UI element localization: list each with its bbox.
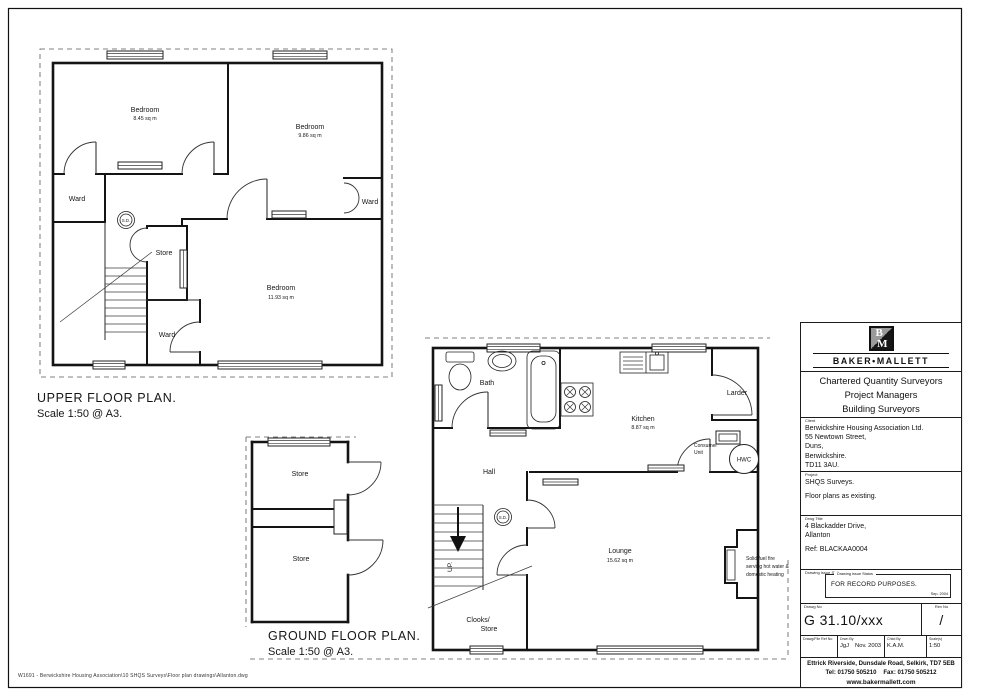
upper-external-walls [53,63,382,365]
checked-by-value: K.A.M. [887,643,924,649]
revision-label: Rev No [925,605,958,610]
client-line: Duns, [805,442,957,451]
drawing-info-row: Drawg/File Ref No Drwn By JgJNov. 2003 C… [801,636,961,659]
tagline-1: Chartered Quantity Surveyors [805,375,957,389]
tagline-2: Project Managers [805,389,957,403]
room-label-bath: Bath [480,380,495,387]
ground-stairs: UP. [428,505,532,608]
room-label-bedroom1: Bedroom [131,107,160,114]
project-line: Floor plans as existing. [805,492,957,501]
tagline-3: Building Surveyors [805,403,957,417]
scale-cell: Scale(s) 1:50 [926,636,961,658]
project-line: SHQS Surveys. [805,478,957,487]
ground-plan-scale: Scale 1:50 @ A3. [268,646,353,658]
upper-internal-walls [53,63,382,365]
project-section: Project SHQS Surveys. Floor plans as exi… [801,472,961,516]
room-label-store-upper: Store [156,250,173,257]
drawing-ref: Ref: BLACKAA0004 [805,545,957,554]
upper-smoke-detector-icon: S.D. [118,212,135,229]
ground-smoke-detector-icon: S.D. [495,509,512,526]
drawing-number-cell: Drawg No G 31.10/xxx [801,604,921,634]
sink-unit-icon [620,352,668,373]
room-label-ward-bottom: Ward [159,332,176,339]
baker-mallett-logo: B M [869,326,894,351]
room-label-cloaks-2: Store [481,626,498,633]
room-label-cloaks-1: Clooks/ [466,617,489,624]
drawing-file-path: W1691 - Berwickshire Housing Association… [18,673,248,679]
ground-windows [268,344,706,654]
client-line: Berwickshire. [805,452,957,461]
consumer-unit-label-2: Unit [694,450,704,456]
fire-note-2: serving hot water & [746,564,789,570]
hwc-label: HWC [737,458,752,464]
upper-floor-plan: S.D. Bedroom 8.45 sq m Bedroom 9.86 sq m… [37,49,392,420]
drawing-title-section: Drwg Title 4 Blackadder Drive, Allanton … [801,516,961,570]
checked-by-cell: Chkd By K.A.M. [884,636,926,658]
firm-fax: Fax: 01750 505212 [883,669,936,676]
title-block: B M BAKER•MALLETT Chartered Quantity Sur… [800,322,962,688]
ground-plan-title: GROUND FLOOR PLAN. [268,629,421,643]
consumer-unit-icon [716,431,740,444]
drawn-by-initials: JgJ [840,643,849,649]
status-box: Drawing Issue Status FOR RECORD PURPOSES… [825,574,951,598]
client-line: 55 Newtown Street, [805,433,957,442]
fire-note-1: Solid fuel fire [746,556,775,562]
toilet-icon [446,352,474,390]
room-label-ward-right: Ward [362,199,379,206]
room-label-kitchen: Kitchen [631,416,654,423]
drawing-number-row: Drawg No G 31.10/xxx Rev No / [801,604,961,635]
stairs-up-label: UP. [447,562,454,572]
upper-roof-outline [40,49,392,377]
drawing-number-label: Drawg No [804,605,918,610]
room-area-bedroom2: 9.86 sq m [298,133,322,139]
firm-tel: Tel: 01750 505210 [825,669,876,676]
drawn-by-cell: Drwn By JgJNov. 2003 [837,636,884,658]
bathtub-icon [527,351,560,429]
ground-internal-walls [252,348,758,650]
drawing-title-line: 4 Blackadder Drive, [805,522,957,531]
drawing-number: G 31.10/xxx [804,612,918,628]
firm-website: www.bakermallett.com [801,678,961,687]
ground-doors [348,375,752,575]
consumer-unit-label-1: Consumer [694,443,717,449]
upper-smoke-detector-label: S.D. [122,218,130,223]
drawing-sheet: S.D. Bedroom 8.45 sq m Bedroom 9.86 sq m… [0,0,982,696]
checked-by-label: Chkd By [887,637,924,641]
firm-name: BAKER•MALLETT [813,353,950,368]
upper-stairs [60,252,152,332]
ground-floor-plan: UP. [246,338,789,659]
scale-value: 1:50 [929,643,959,649]
file-ref-label: Drawg/File Ref No [803,637,835,641]
status-date: Sep. 2004 [931,592,948,596]
room-label-bedroom3: Bedroom [267,285,296,292]
room-label-ward-left: Ward [69,196,86,203]
upper-plan-scale: Scale 1:50 @ A3. [37,408,122,420]
upper-plan-title: UPPER FLOOR PLAN. [37,391,176,405]
room-label-larder: Larder [727,390,748,397]
hob-icon [561,383,593,416]
drawn-date: Nov. 2003 [855,643,881,649]
firm-address: Ettrick Riverside, Dunsdale Road, Selkir… [801,660,961,669]
room-area-bedroom3: 11.93 sq m [268,295,294,301]
logo-letter-m: M [877,338,887,350]
drawn-by-label: Drwn By [840,637,882,641]
revision-value: / [925,612,958,628]
file-ref-cell: Drawg/File Ref No [801,636,837,658]
title-block-logo-section: B M BAKER•MALLETT [801,323,961,372]
drawing-issue-status-section: Drawing Issue Status Drawing Issue Statu… [801,570,961,604]
revision-cell: Rev No / [921,604,961,634]
status-text: FOR RECORD PURPOSES. [826,575,950,588]
room-label-bedroom2: Bedroom [296,124,325,131]
stairs-up-arrow [450,536,466,552]
room-area-lounge: 15.62 sq m [607,558,634,564]
hot-water-cylinder-icon: HWC [730,445,759,474]
fire-note-3: domestic heating [746,572,784,578]
ground-smoke-detector-label: S.D. [499,515,507,520]
ground-roof-outline [246,338,788,659]
client-line: Berwickshire Housing Association Ltd. [805,424,957,433]
status-box-label: Drawing Issue Status [834,572,876,576]
client-section: Client Berwickshire Housing Association … [801,418,961,472]
scale-label: Scale(s) [929,637,959,641]
room-label-hall: Hall [483,469,496,476]
room-area-bedroom1: 8.45 sq m [133,116,157,122]
basin-icon [488,351,516,371]
firm-taglines: Chartered Quantity Surveyors Project Man… [801,372,961,418]
room-label-store1: Store [292,471,309,478]
upper-windows [93,51,327,369]
room-label-lounge: Lounge [608,548,631,555]
client-line: TD11 3AU. [805,461,957,470]
room-area-kitchen: 8.87 sq m [631,425,655,431]
room-label-store2: Store [293,556,310,563]
ground-external-walls [252,348,758,650]
firm-contact-footer: Ettrick Riverside, Dunsdale Road, Selkir… [801,658,961,687]
drawing-title-line: Allanton [805,531,957,540]
